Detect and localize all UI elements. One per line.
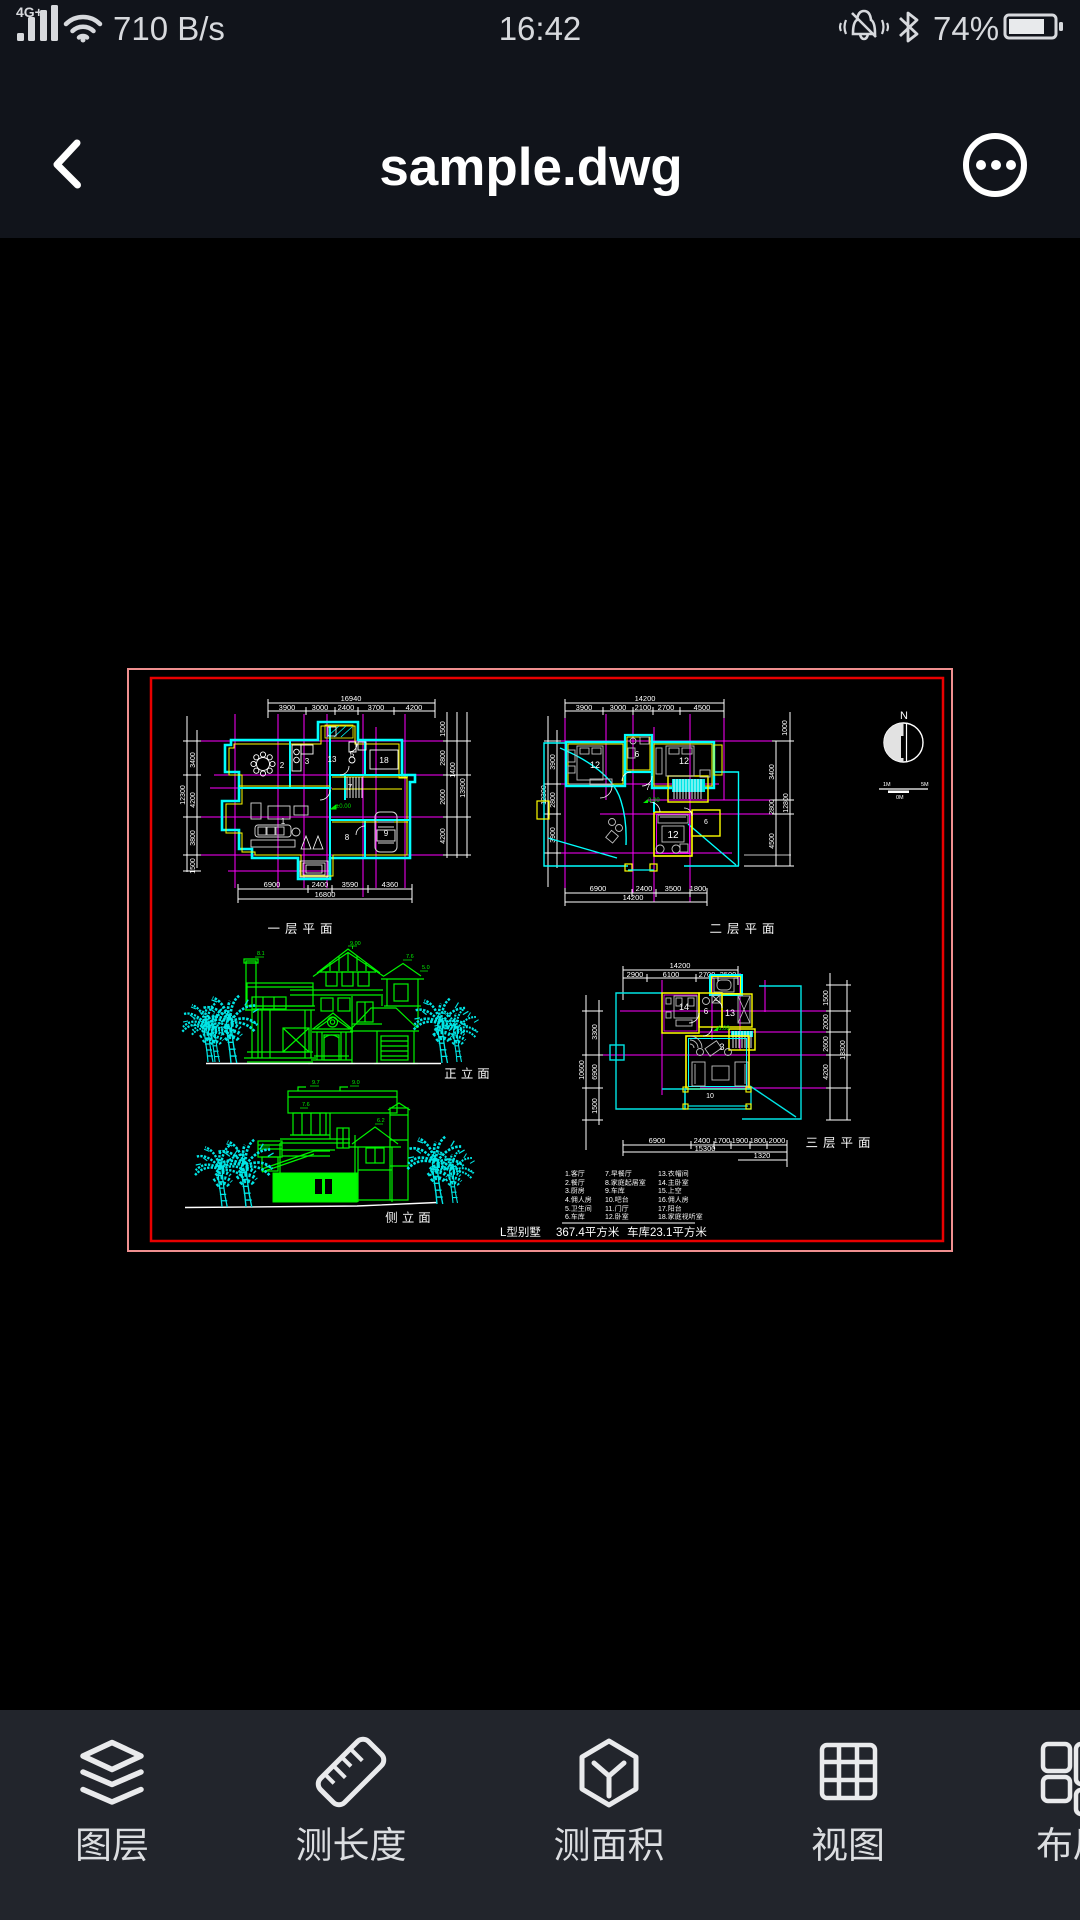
svg-text:5.: 5. xyxy=(565,1206,571,1213)
svg-text:18: 18 xyxy=(379,755,389,765)
svg-text:13: 13 xyxy=(725,1008,735,1018)
svg-text:4200: 4200 xyxy=(823,1064,830,1080)
svg-text:2800: 2800 xyxy=(550,792,557,808)
svg-text:13300: 13300 xyxy=(840,1040,847,1060)
svg-text:4500: 4500 xyxy=(694,703,711,712)
svg-text:367.4: 367.4 xyxy=(556,1227,585,1239)
svg-text:4500: 4500 xyxy=(769,833,776,849)
svg-text:1: 1 xyxy=(281,817,286,826)
svg-text:6: 6 xyxy=(704,819,708,826)
svg-text:1900: 1900 xyxy=(732,1136,749,1145)
svg-text:9.: 9. xyxy=(605,1188,611,1195)
svg-text:2100: 2100 xyxy=(635,703,652,712)
svg-text:1800: 1800 xyxy=(750,1136,767,1145)
svg-text:4200: 4200 xyxy=(190,792,197,808)
svg-text:3400: 3400 xyxy=(190,752,197,768)
svg-text:14200: 14200 xyxy=(635,694,656,703)
svg-text:8: 8 xyxy=(345,833,350,842)
svg-text:2000: 2000 xyxy=(823,1014,830,1030)
svg-text:3300: 3300 xyxy=(592,1024,599,1040)
svg-text:1700: 1700 xyxy=(714,1136,731,1145)
svg-text:1500: 1500 xyxy=(823,990,830,1006)
svg-text:5: 5 xyxy=(350,750,355,759)
svg-text:12: 12 xyxy=(667,830,679,841)
svg-text:L: L xyxy=(500,1227,507,1239)
svg-text:13: 13 xyxy=(328,755,337,764)
svg-text:10: 10 xyxy=(706,1093,714,1100)
svg-text:11.: 11. xyxy=(605,1206,614,1213)
svg-text:8.: 8. xyxy=(605,1180,611,1187)
svg-text:12: 12 xyxy=(679,756,689,766)
svg-text:4360: 4360 xyxy=(382,880,399,889)
svg-text:6100: 6100 xyxy=(663,970,680,979)
svg-text:2.: 2. xyxy=(565,1180,571,1187)
svg-text:5M: 5M xyxy=(921,782,929,788)
svg-text:6.: 6. xyxy=(565,1214,571,1221)
svg-text:6900: 6900 xyxy=(592,1064,599,1080)
svg-text:6900: 6900 xyxy=(264,880,281,889)
svg-text:3700: 3700 xyxy=(368,703,385,712)
svg-text:2600: 2600 xyxy=(440,789,447,805)
svg-text:9: 9 xyxy=(384,829,389,838)
svg-text:3800: 3800 xyxy=(190,830,197,846)
svg-text:6900: 6900 xyxy=(590,884,607,893)
svg-text:12: 12 xyxy=(590,760,600,770)
svg-text:12.: 12. xyxy=(605,1214,615,1221)
svg-text:2600: 2600 xyxy=(823,1036,830,1052)
svg-text:3900: 3900 xyxy=(279,703,296,712)
svg-text:14.: 14. xyxy=(658,1180,668,1187)
svg-text:16800: 16800 xyxy=(315,890,336,899)
svg-text:4200: 4200 xyxy=(440,828,447,844)
svg-text:9.00: 9.00 xyxy=(350,941,361,947)
svg-text:1.: 1. xyxy=(565,1171,571,1178)
svg-text:7: 7 xyxy=(348,783,353,792)
svg-text:14: 14 xyxy=(679,1002,689,1012)
svg-text:12800: 12800 xyxy=(783,793,790,813)
svg-text:2800: 2800 xyxy=(769,799,776,815)
svg-text:16.: 16. xyxy=(658,1197,668,1204)
svg-text:3: 3 xyxy=(719,1042,724,1052)
svg-text:18.: 18. xyxy=(658,1214,668,1221)
svg-text:14200: 14200 xyxy=(623,893,644,902)
svg-text:2400: 2400 xyxy=(338,703,355,712)
svg-text:3000: 3000 xyxy=(610,703,627,712)
svg-text:8.1: 8.1 xyxy=(257,951,265,957)
svg-text:3590: 3590 xyxy=(342,880,359,889)
svg-text:3.00: 3.00 xyxy=(648,798,660,804)
svg-text:2000: 2000 xyxy=(769,1136,786,1145)
svg-text:sample.dwg: sample.dwg xyxy=(379,138,682,197)
svg-text:16:42: 16:42 xyxy=(499,10,582,47)
svg-text:74%: 74% xyxy=(933,10,999,47)
svg-text:3500: 3500 xyxy=(665,884,682,893)
svg-text:7: 7 xyxy=(646,783,651,792)
svg-text:6900: 6900 xyxy=(649,1136,666,1145)
svg-text:5.0: 5.0 xyxy=(422,965,430,971)
svg-text:N: N xyxy=(900,710,908,722)
svg-text:3900: 3900 xyxy=(576,703,593,712)
svg-text:6.2: 6.2 xyxy=(377,1118,385,1124)
svg-text:1M: 1M xyxy=(883,782,891,788)
svg-text:1000: 1000 xyxy=(782,720,789,736)
svg-text:2400: 2400 xyxy=(312,880,329,889)
svg-text:6: 6 xyxy=(635,750,640,759)
svg-text:4.: 4. xyxy=(565,1197,571,1204)
svg-text:1400: 1400 xyxy=(450,762,457,778)
svg-text:10.: 10. xyxy=(605,1197,615,1204)
svg-text:1800: 1800 xyxy=(690,884,707,893)
svg-text:7.6: 7.6 xyxy=(406,954,414,960)
svg-text:9.0: 9.0 xyxy=(352,1080,360,1086)
svg-text:1500: 1500 xyxy=(592,1098,599,1114)
svg-text:15300: 15300 xyxy=(695,1144,716,1153)
svg-text:14200: 14200 xyxy=(670,961,691,970)
svg-text:15.: 15. xyxy=(658,1188,668,1195)
svg-text:3400: 3400 xyxy=(769,764,776,780)
svg-text:9.7: 9.7 xyxy=(312,1080,320,1086)
svg-text:13.: 13. xyxy=(658,1171,668,1178)
svg-text:2800: 2800 xyxy=(440,750,447,766)
svg-text:±0.00: ±0.00 xyxy=(336,804,352,810)
svg-text:16940: 16940 xyxy=(341,694,362,703)
svg-text:710 B/s: 710 B/s xyxy=(113,10,225,47)
svg-text:2700: 2700 xyxy=(658,703,675,712)
svg-text:23.1: 23.1 xyxy=(650,1227,672,1239)
svg-text:0M: 0M xyxy=(896,795,904,801)
svg-text:3.: 3. xyxy=(565,1188,571,1195)
svg-text:3900: 3900 xyxy=(550,754,557,770)
svg-text:7.: 7. xyxy=(605,1171,611,1178)
svg-text:10600: 10600 xyxy=(579,1060,586,1080)
svg-text:3000: 3000 xyxy=(312,703,329,712)
svg-text:4200: 4200 xyxy=(406,703,423,712)
svg-text:2900: 2900 xyxy=(627,970,644,979)
svg-text:2400: 2400 xyxy=(636,884,653,893)
svg-text:1500: 1500 xyxy=(190,858,197,874)
svg-text:6: 6 xyxy=(704,1007,709,1016)
svg-text:13900: 13900 xyxy=(460,778,467,798)
svg-text:7.6: 7.6 xyxy=(302,1102,310,1108)
svg-text:12300: 12300 xyxy=(180,785,187,805)
svg-text:4G+: 4G+ xyxy=(16,4,43,20)
svg-text:3: 3 xyxy=(305,757,310,766)
svg-text:17.: 17. xyxy=(658,1206,668,1213)
svg-text:1320: 1320 xyxy=(754,1151,771,1160)
svg-text:2: 2 xyxy=(280,761,285,770)
svg-text:1500: 1500 xyxy=(440,721,447,737)
svg-text:6.00: 6.00 xyxy=(718,1026,730,1032)
